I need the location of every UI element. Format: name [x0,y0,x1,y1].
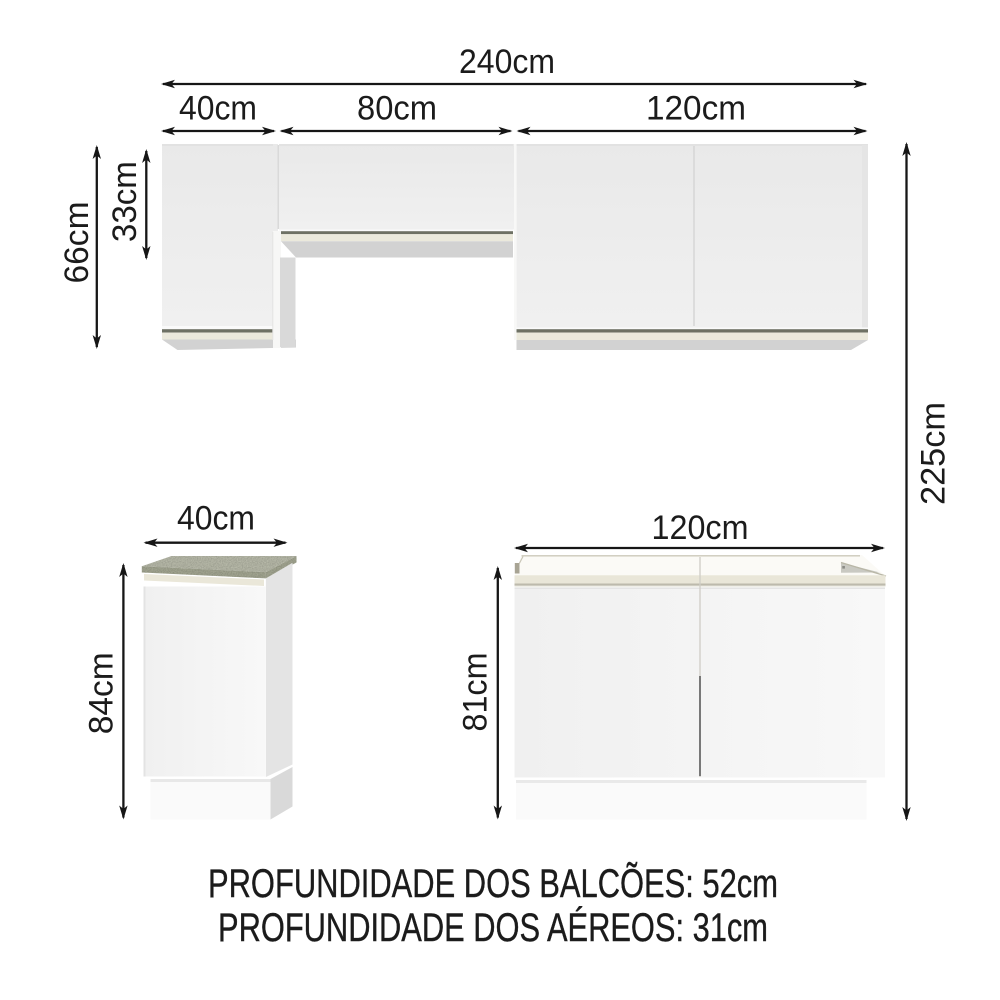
svg-text:120cm: 120cm [646,90,746,128]
svg-text:120cm: 120cm [652,509,749,547]
svg-text:240cm: 240cm [459,43,555,81]
svg-text:84cm: 84cm [83,652,121,734]
svg-text:40cm: 40cm [179,90,257,128]
svg-text:33cm: 33cm [106,161,144,242]
svg-text:PROFUNDIDADE DOS BALCÕES: 52cm: PROFUNDIDADE DOS BALCÕES: 52cm [208,861,778,906]
svg-text:40cm: 40cm [177,500,255,538]
svg-text:225cm: 225cm [915,402,953,505]
svg-text:66cm: 66cm [58,202,96,284]
svg-text:81cm: 81cm [456,653,494,732]
svg-text:PROFUNDIDADE DOS AÉREOS: 31cm: PROFUNDIDADE DOS AÉREOS: 31cm [218,905,768,950]
svg-text:80cm: 80cm [357,90,437,128]
